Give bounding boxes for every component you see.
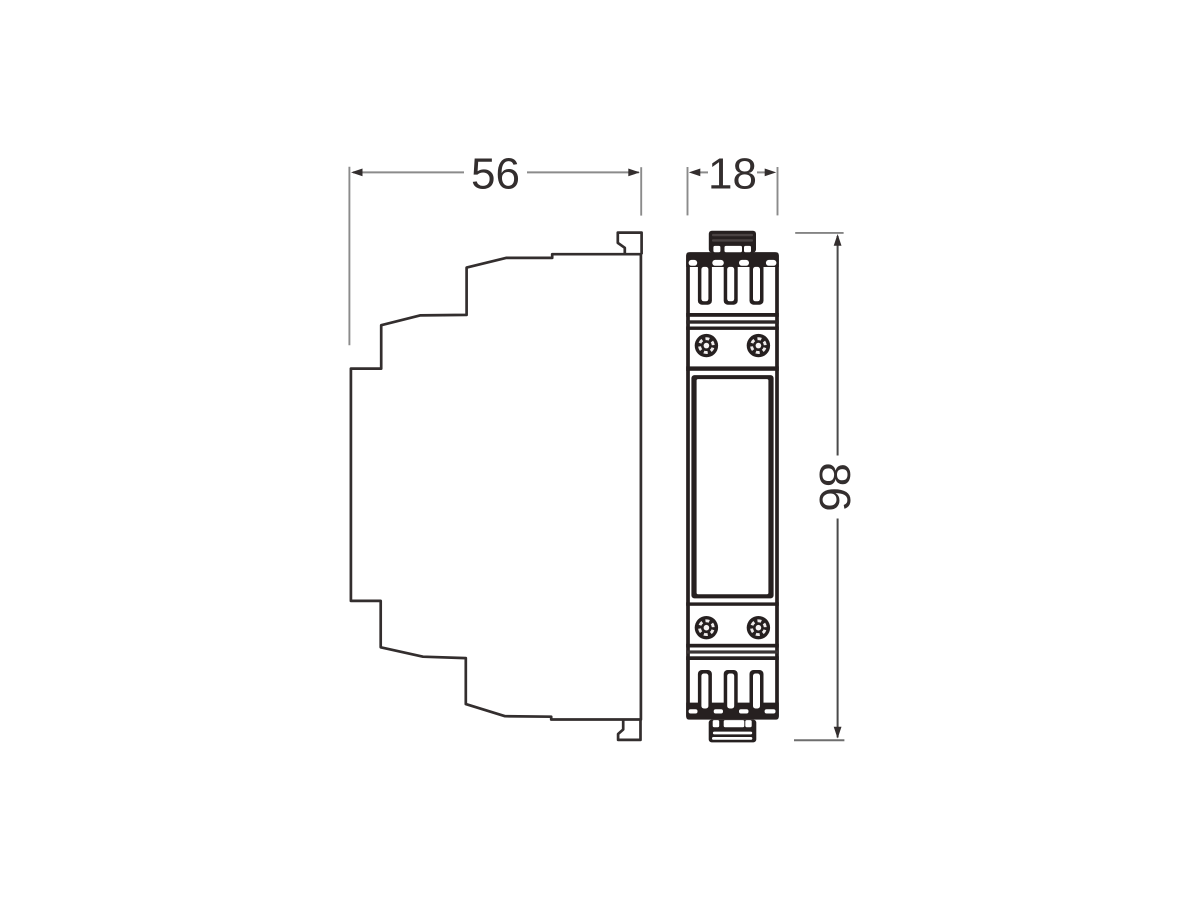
svg-text:86: 86	[810, 463, 859, 512]
svg-text:56: 56	[471, 150, 520, 199]
svg-text:18: 18	[708, 150, 757, 199]
